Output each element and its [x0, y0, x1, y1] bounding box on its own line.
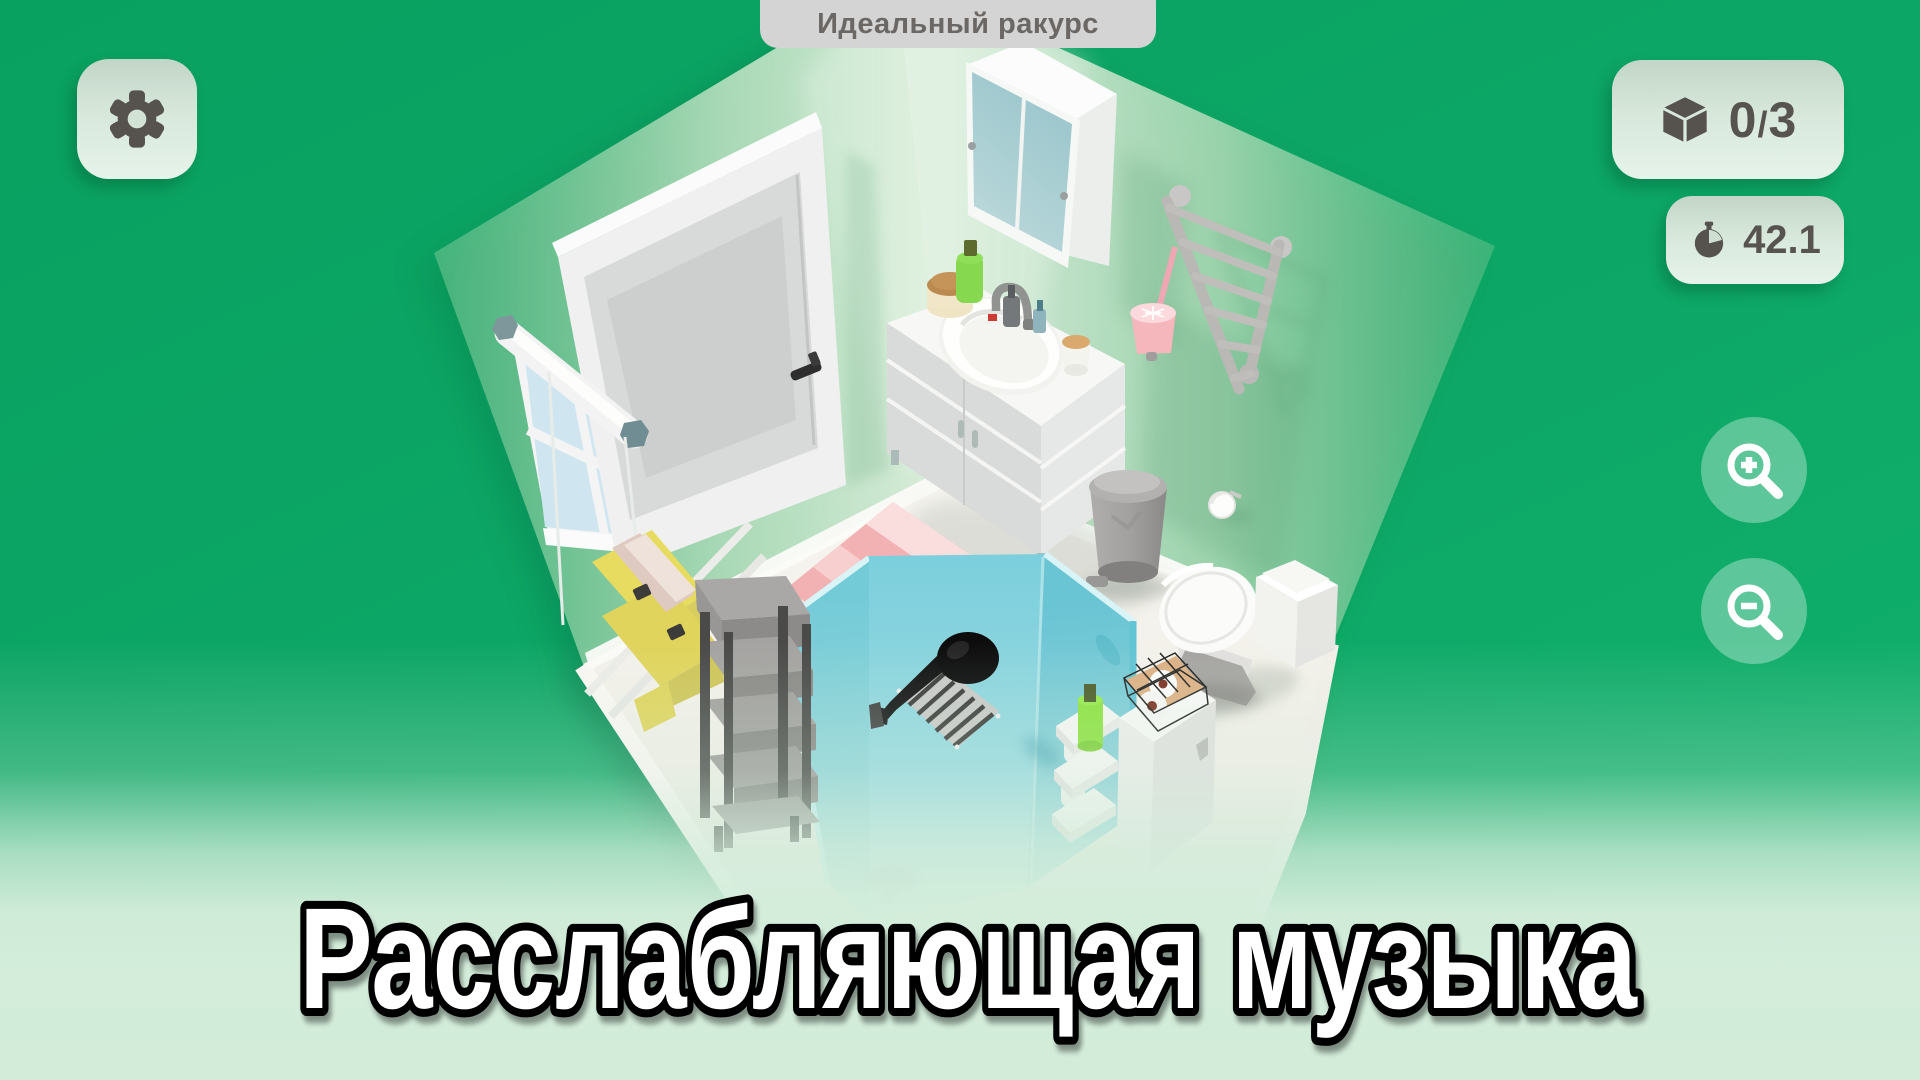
svg-text:Расслабляющая музыка: Расслабляющая музыка [299, 879, 1638, 1040]
